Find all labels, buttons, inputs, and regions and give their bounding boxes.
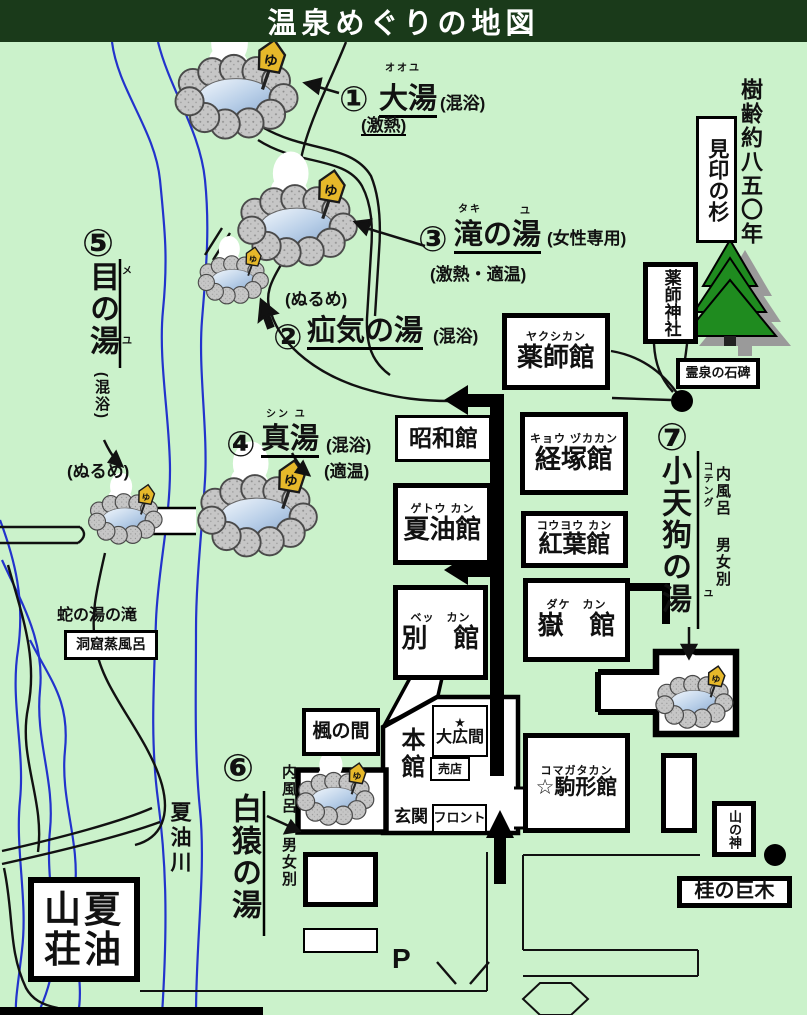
building-bekkan: ベッ カン 別 館 — [393, 585, 488, 680]
spring5-furigana-2: ユ — [122, 337, 134, 347]
hexagon-shape — [523, 983, 588, 1015]
spring4-furigana: シン ユ — [266, 410, 307, 420]
building-kyozukakan: キョウ ヅカカン 経塚館 — [520, 412, 628, 495]
building-dakekan: ダケ カン 嶽 館 — [523, 578, 630, 662]
komagatakan-label: ☆駒形館 — [536, 777, 618, 800]
building-geto-sanso: 山夏 荘油 — [28, 877, 140, 982]
mountain-god-label: 山の神 — [727, 810, 741, 849]
sacred-stone-label: 霊泉の石碑 — [685, 366, 750, 380]
spring3-furigana-2: ユ — [520, 207, 532, 217]
genkan-label: 玄関 — [394, 808, 428, 825]
building-yakushi-shrine: 薬師神社 — [643, 262, 698, 344]
spring5-name: 目の湯 — [86, 261, 116, 357]
building-box — [661, 753, 697, 833]
landmark-cedar-label: 見印の杉 — [705, 138, 728, 222]
katsura-tree-box: 桂の巨木 — [677, 876, 792, 908]
spring3-number: ③ — [418, 222, 448, 257]
building-front-desk: フロント — [432, 804, 487, 833]
spring6-hakuennoyu-icon — [297, 751, 374, 825]
spring4-shinyu-icon — [198, 441, 317, 556]
spring7-name: 小天狗の湯 — [658, 455, 688, 615]
spring3-furigana-1: タキ — [458, 205, 482, 215]
front-desk-label: フロント — [434, 811, 486, 825]
geto-river-label: 夏油川 — [169, 801, 190, 876]
road-lines — [140, 852, 700, 1015]
showakan-label: 昭和館 — [409, 426, 478, 451]
spring2-number: ② — [273, 320, 303, 355]
spring3-name: 滝の湯 — [454, 220, 541, 254]
spring6-gender-label: 男女別 — [281, 837, 296, 888]
spring6-name: 白猿の湯 — [228, 793, 258, 921]
spring6-indoor-bath-label: 内風呂 — [281, 764, 296, 815]
parking-label: P — [392, 945, 411, 973]
spring1-furigana: オオユ — [385, 64, 421, 74]
building-box — [303, 928, 378, 953]
building-yakushikan: ヤクシカン 薬師館 — [502, 313, 610, 390]
spring1-temp: (激熱) — [361, 117, 406, 136]
building-showakan: 昭和館 — [395, 415, 492, 462]
katsura-tree-label: 桂の巨木 — [695, 881, 775, 903]
geto-sanso-line2: 荘油 — [44, 930, 124, 970]
building-box — [303, 852, 378, 907]
spring4-name: 真湯 — [261, 424, 319, 458]
mountain-god-box: 山の神 — [712, 801, 756, 857]
getokan-label: 夏油館 — [403, 515, 481, 543]
route-arrow-left-1 — [444, 385, 468, 415]
honkan-label: 本館 — [398, 727, 422, 781]
spring2-temp: (ぬるめ) — [285, 291, 347, 308]
spring4-temp: (適温) — [324, 463, 369, 480]
cave-steam-bath-box: 洞窟蒸風呂 — [64, 630, 158, 660]
spring5-number: ⑤ — [82, 225, 114, 263]
spring3-temp: (激熱・適温) — [430, 266, 526, 283]
onsen-map: 温泉めぐりの地図 — [0, 0, 807, 1015]
kaede-room-label: 楓の間 — [312, 722, 369, 743]
bottom-road-bar — [0, 1007, 263, 1015]
tree-age-label: 樹齢約八五〇年 — [739, 78, 761, 246]
spring5-furigana-1: メ — [122, 267, 134, 277]
yakushi-shrine-label: 薬師神社 — [661, 269, 679, 337]
spring1-name: 大湯 — [379, 84, 437, 118]
koyokan-label: 紅葉館 — [539, 532, 611, 558]
bekkan-label: 別 館 — [401, 624, 479, 652]
ohiroma-label: 大広間 — [436, 729, 484, 746]
spring7-furigana-2: ユ — [701, 588, 711, 600]
spring5-temp: (ぬるめ) — [67, 463, 129, 480]
geto-sanso-line1: 山夏 — [44, 890, 124, 930]
spring5-note: (混浴) — [94, 372, 109, 420]
spring7-number: ⑦ — [656, 419, 688, 457]
yakushikan-label: 薬師館 — [517, 343, 595, 371]
building-ohiroma: ★ 大広間 — [432, 705, 488, 757]
building-baiten: 売店 — [430, 757, 470, 781]
spring7-indoor-bath-label: 内風呂 — [715, 466, 730, 517]
sacred-stone-box: 霊泉の石碑 — [676, 358, 760, 389]
spring1-note: (混浴) — [440, 95, 485, 112]
spring7-furigana-1: コテング — [701, 461, 711, 509]
spring3-note: (女性専用) — [547, 230, 626, 247]
building-komagatakan: コマガタカン ☆駒形館 — [523, 733, 630, 833]
cave-steam-bath-label: 洞窟蒸風呂 — [76, 637, 146, 652]
katsura-tree-dot — [764, 844, 786, 866]
building-koyokan: コウヨウ カン 紅葉館 — [521, 511, 628, 568]
spring6-number: ⑥ — [222, 750, 254, 788]
star-icon: ★ — [454, 716, 466, 729]
cedar-tree-icon — [684, 240, 791, 356]
building-getokan: ゲトウ カン 夏油館 — [393, 483, 492, 565]
building-kaede-room: 楓の間 — [302, 708, 380, 756]
spring2-note: (混浴) — [433, 328, 478, 345]
sacred-stone-dot — [671, 390, 693, 412]
baiten-label: 売店 — [438, 763, 462, 776]
kyozukakan-label: 経塚館 — [535, 445, 613, 473]
landmark-cedar-box: 見印の杉 — [696, 116, 737, 243]
spring5-menoyu-icon — [89, 473, 162, 544]
spring1-number: ① — [339, 82, 369, 117]
spring7-gender-label: 男女別 — [715, 537, 730, 588]
spring2-name: 疝気の湯 — [307, 316, 423, 350]
snake-falls-label: 蛇の湯の滝 — [57, 608, 137, 624]
dakekan-label: 嶽 館 — [537, 611, 615, 639]
spring4-number: ④ — [226, 427, 256, 462]
map-title: 温泉めぐりの地図 — [0, 0, 807, 42]
spring4-note: (混浴) — [326, 437, 371, 454]
